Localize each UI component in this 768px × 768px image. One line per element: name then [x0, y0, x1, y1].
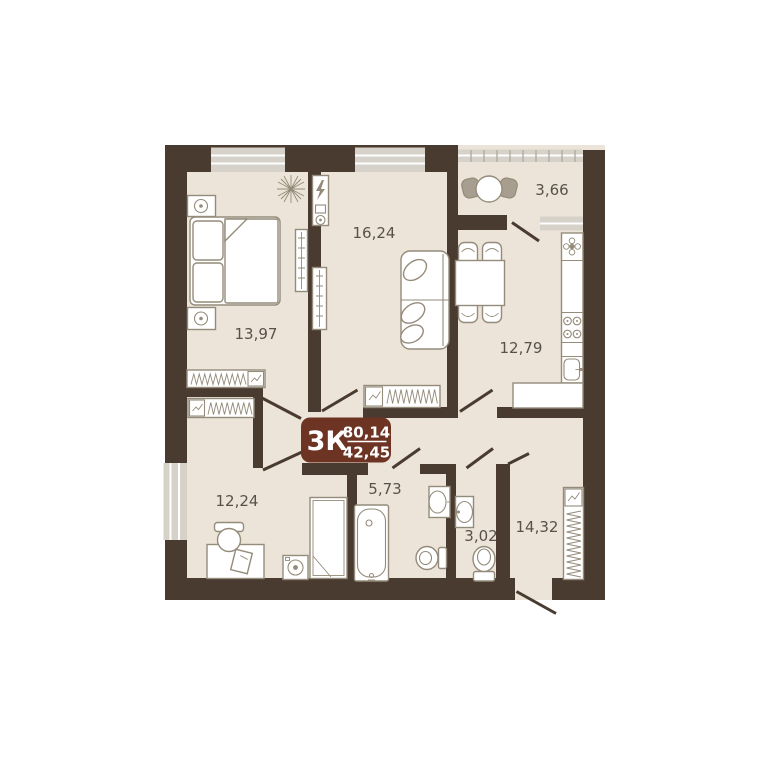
balcony-sill-window [540, 217, 583, 231]
nightstand-top [188, 196, 216, 217]
wardrobe-row-bottom [188, 399, 254, 418]
wardrobe-row-top [187, 370, 265, 388]
living-wardrobe [313, 268, 327, 330]
wc-area-label: 3,02 [464, 527, 497, 545]
living-room-area-label: 16,24 [353, 224, 396, 242]
kitchen-area-label: 12,79 [500, 339, 543, 357]
room-window [164, 463, 188, 540]
floor-plan-page: 13,97 16,24 3,66 12,79 12,24 5,73 3,02 1… [0, 0, 768, 768]
tall-cabinet [310, 498, 347, 579]
apartment-badge: 3К 80,14 42,45 [301, 418, 391, 463]
nightstand-bottom [188, 308, 216, 330]
bathroom-toilet [416, 547, 447, 570]
bedroom-window [211, 148, 285, 173]
chandelier-icon [277, 175, 305, 203]
wc-toilet [473, 547, 495, 582]
living-room-window [355, 148, 425, 173]
bathroom-sink [429, 487, 451, 518]
bathtub [355, 505, 389, 581]
bedroom-wardrobe [296, 230, 308, 292]
balcony-area-label: 3,66 [535, 181, 568, 199]
floor-plan: 13,97 16,24 3,66 12,79 12,24 5,73 3,02 1… [0, 0, 768, 768]
badge-type-label: 3К [307, 426, 348, 457]
hallway-area-label: 14,32 [516, 518, 559, 536]
badge-total-area: 80,14 [343, 424, 390, 442]
bedroom-area-label: 13,97 [235, 325, 278, 343]
sofa [397, 251, 449, 349]
electrical-panel-icon [313, 176, 329, 226]
room-area-label: 12,24 [216, 492, 259, 510]
balcony-table [476, 176, 502, 202]
double-bed [190, 217, 280, 305]
badge-living-area: 42,45 [343, 444, 390, 462]
balcony-glazing [458, 150, 583, 163]
balcony-furniture [460, 176, 518, 202]
hallway-wardrobe [564, 488, 584, 580]
washing-machine [283, 556, 308, 580]
living-bottom-wardrobe [364, 386, 440, 408]
wc-sink [456, 497, 474, 528]
bathroom-area-label: 5,73 [368, 480, 401, 498]
